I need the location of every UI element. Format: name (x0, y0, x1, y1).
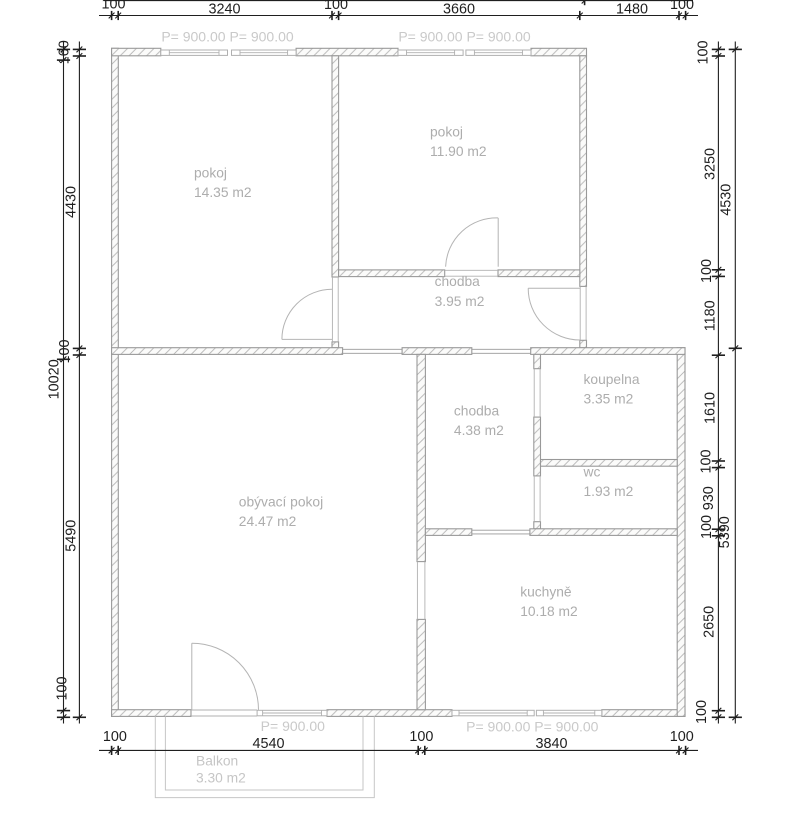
svg-text:4540: 4540 (252, 736, 284, 752)
svg-text:100: 100 (101, 0, 125, 13)
svg-text:100: 100 (699, 259, 715, 283)
svg-text:pokoj: pokoj (194, 165, 227, 180)
svg-text:3250: 3250 (702, 148, 718, 180)
svg-text:5490: 5490 (64, 520, 80, 552)
svg-text:100: 100 (699, 515, 715, 539)
svg-text:chodba: chodba (454, 403, 500, 418)
svg-text:pokoj: pokoj (430, 124, 463, 139)
svg-text:100: 100 (409, 729, 433, 745)
svg-text:koupelna: koupelna (584, 372, 640, 387)
svg-text:kuchyně: kuchyně (520, 584, 572, 599)
svg-text:24.47 m2: 24.47 m2 (239, 514, 297, 529)
svg-text:100: 100 (694, 700, 710, 724)
svg-text:930: 930 (701, 486, 717, 510)
svg-text:11.90 m2: 11.90 m2 (430, 144, 487, 159)
svg-text:3240: 3240 (208, 2, 240, 18)
svg-text:P= 900.00 P= 900.00: P= 900.00 P= 900.00 (161, 28, 294, 44)
svg-text:100: 100 (57, 339, 73, 363)
svg-text:2650: 2650 (701, 606, 717, 638)
svg-text:obývací pokoj: obývací pokoj (239, 494, 323, 509)
svg-text:3.30 m2: 3.30 m2 (196, 771, 246, 786)
svg-text:1610: 1610 (703, 392, 719, 424)
svg-text:14.35 m2: 14.35 m2 (194, 185, 252, 200)
svg-text:3660: 3660 (443, 2, 475, 18)
svg-text:100: 100 (695, 40, 711, 64)
svg-text:4430: 4430 (63, 186, 79, 218)
svg-text:100: 100 (324, 0, 348, 13)
svg-text:100: 100 (670, 729, 694, 745)
svg-text:10020: 10020 (47, 359, 63, 399)
svg-text:3.35 m2: 3.35 m2 (584, 391, 634, 406)
svg-text:160: 160 (57, 40, 73, 64)
svg-text:4530: 4530 (718, 184, 734, 216)
svg-text:P= 900.00: P= 900.00 (261, 718, 325, 734)
svg-text:3840: 3840 (535, 736, 567, 752)
svg-text:1480: 1480 (616, 2, 648, 18)
svg-text:1.93 m2: 1.93 m2 (584, 484, 634, 499)
svg-text:4.38 m2: 4.38 m2 (454, 423, 504, 438)
svg-text:chodba: chodba (435, 274, 481, 289)
svg-text:10.18 m2: 10.18 m2 (520, 604, 578, 619)
svg-text:wc: wc (583, 464, 601, 479)
svg-text:100: 100 (103, 729, 127, 745)
svg-text:1180: 1180 (703, 300, 719, 331)
svg-text:100: 100 (670, 0, 694, 13)
svg-text:P= 900.00 P= 900.00: P= 900.00 P= 900.00 (466, 719, 599, 735)
svg-text:100: 100 (55, 676, 71, 700)
svg-text:5390: 5390 (717, 516, 733, 548)
svg-text:3.95 m2: 3.95 m2 (435, 294, 485, 309)
svg-text:P= 900.00 P= 900.00: P= 900.00 P= 900.00 (398, 28, 531, 44)
svg-text:100: 100 (698, 449, 714, 473)
svg-text:Balkon: Balkon (196, 753, 238, 768)
